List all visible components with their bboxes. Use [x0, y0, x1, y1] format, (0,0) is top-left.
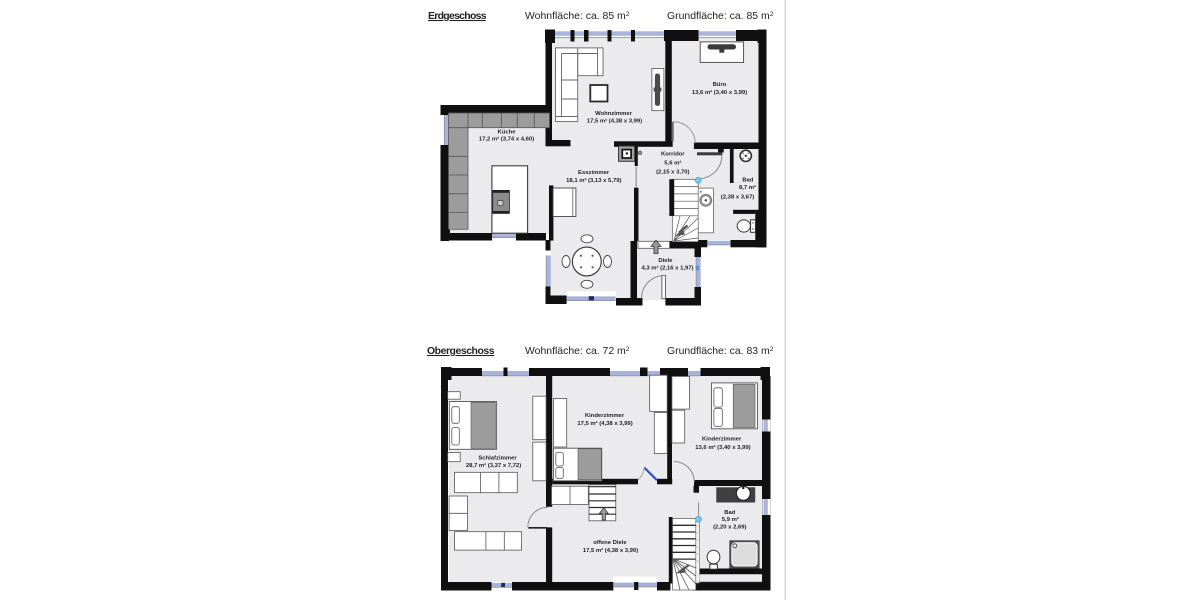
svg-text:13,6 m² (3,40 x 3,99): 13,6 m² (3,40 x 3,99): [692, 89, 747, 96]
svg-text:17,5 m² (4,38 x 3,99): 17,5 m² (4,38 x 3,99): [583, 547, 638, 554]
svg-text:Schlafzimmer: Schlafzimmer: [478, 455, 517, 461]
svg-text:18,1 m² (3,13 x 5,79): 18,1 m² (3,13 x 5,79): [566, 177, 621, 184]
svg-text:Diele: Diele: [658, 258, 673, 264]
svg-text:5,6 m²: 5,6 m²: [664, 159, 681, 166]
svg-text:Küche: Küche: [497, 129, 516, 135]
svg-text:Esszimmer: Esszimmer: [578, 170, 610, 176]
svg-text:(2,15 x 3,70): (2,15 x 3,70): [656, 170, 689, 176]
svg-text:offene Diele: offene Diele: [593, 540, 627, 546]
svg-text:17,2 m² (3,74 x 4,60): 17,2 m² (3,74 x 4,60): [479, 136, 534, 143]
svg-text:Wohnfläche: ca. 72 m2: Wohnfläche: ca. 72 m2: [525, 346, 630, 357]
svg-text:Büro: Büro: [713, 82, 727, 88]
svg-text:Wohnzimmer: Wohnzimmer: [595, 111, 633, 117]
svg-text:8,7 m²: 8,7 m²: [739, 184, 756, 191]
svg-text:Obergeschoss: Obergeschoss: [427, 346, 495, 357]
svg-text:Erdgeschoss: Erdgeschoss: [428, 11, 487, 22]
svg-text:Kinderzimmer: Kinderzimmer: [585, 413, 625, 419]
svg-text:Bad: Bad: [742, 178, 754, 184]
svg-text:28,7 m² (3,37 x 7,72): 28,7 m² (3,37 x 7,72): [466, 462, 521, 469]
svg-text:Kinderzimmer: Kinderzimmer: [702, 437, 742, 443]
svg-text:13,6 m² (3,40 x 3,99): 13,6 m² (3,40 x 3,99): [695, 444, 750, 451]
svg-text:Bad: Bad: [724, 510, 736, 516]
svg-text:Grundfläche: ca. 83 m2: Grundfläche: ca. 83 m2: [667, 346, 774, 357]
svg-text:Korridor: Korridor: [661, 151, 685, 157]
svg-text:Wohnfläche: ca. 85 m2: Wohnfläche: ca. 85 m2: [525, 11, 630, 22]
svg-text:Grundfläche: ca. 85 m2: Grundfläche: ca. 85 m2: [667, 11, 774, 22]
svg-text:17,5 m² (4,38 x 3,99): 17,5 m² (4,38 x 3,99): [577, 420, 632, 427]
svg-text:(2,38 x 3,67): (2,38 x 3,67): [721, 194, 754, 200]
svg-text:(2,20 x 2,69): (2,20 x 2,69): [713, 525, 746, 531]
svg-text:5,9 m²: 5,9 m²: [722, 516, 739, 523]
svg-text:17,5 m² (4,38 x 3,99): 17,5 m² (4,38 x 3,99): [587, 118, 642, 125]
svg-text:4,3 m² (2,16 x 1,97): 4,3 m² (2,16 x 1,97): [641, 265, 693, 272]
